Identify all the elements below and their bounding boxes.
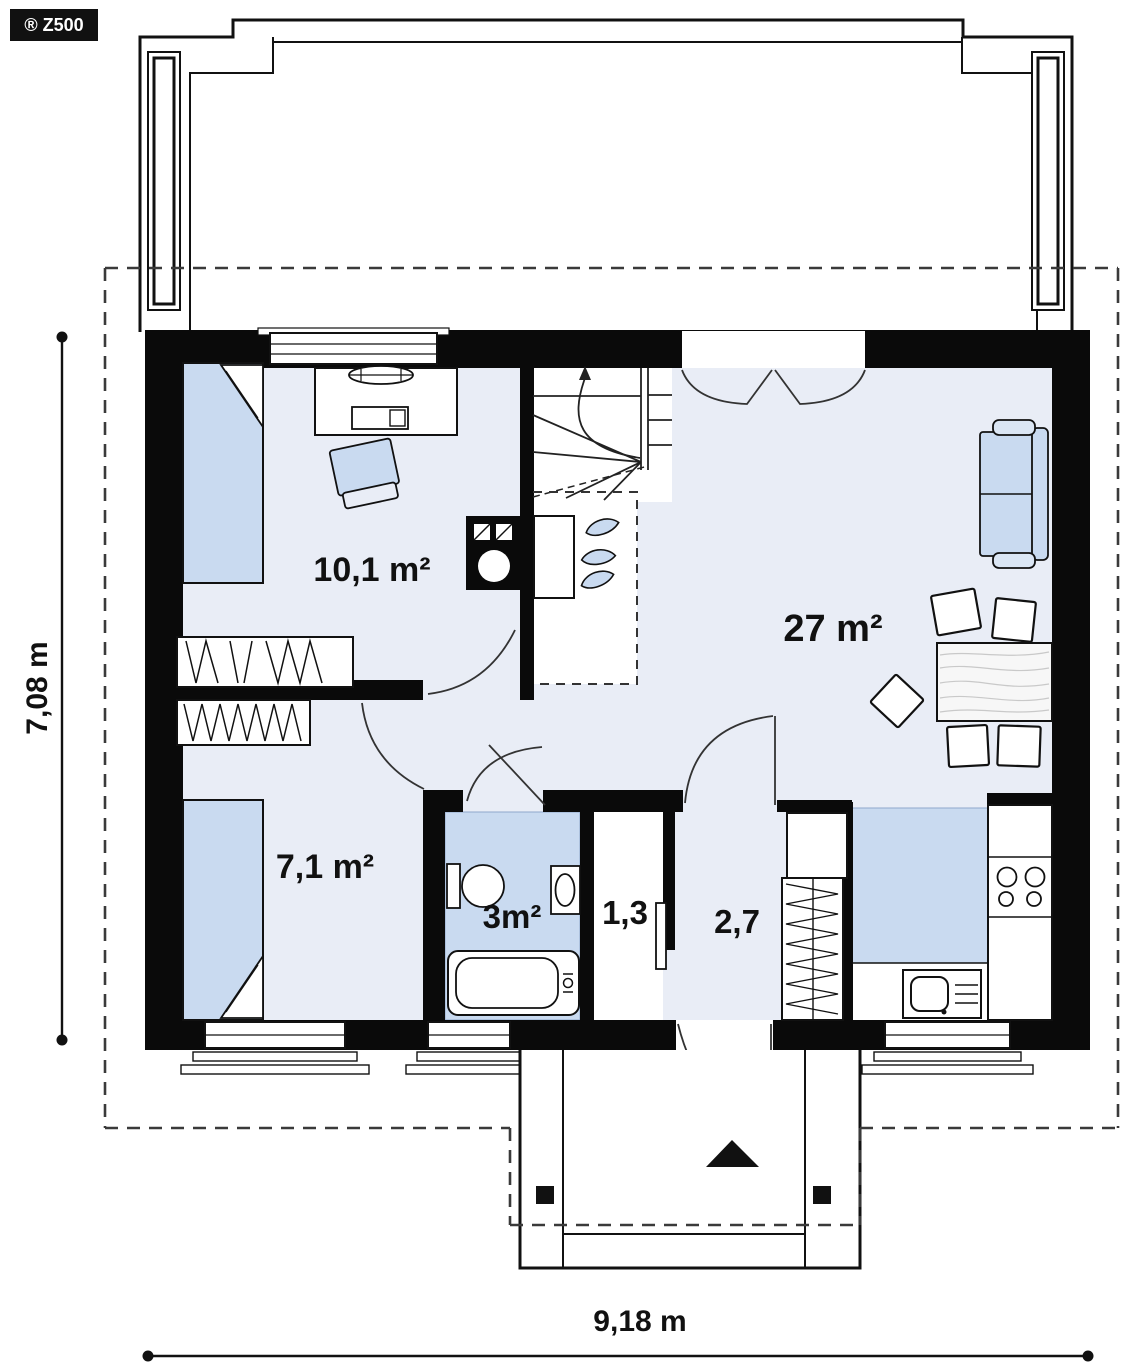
porch <box>520 1050 860 1268</box>
dimension-label-depth: 7,08 m <box>21 608 55 768</box>
desk-chair-icon <box>349 366 413 384</box>
room-label-bedroom-large: 10,1 m² <box>282 551 462 590</box>
room-label-hall: 2,7 <box>677 903 797 941</box>
terrace <box>140 20 1072 332</box>
room-label-living-room: 27 m² <box>743 608 923 651</box>
stove-fireplace-icon <box>466 516 523 590</box>
porch-post <box>536 1186 554 1204</box>
terrace-pillar-right <box>1032 52 1064 310</box>
terrace-pillar-left <box>148 52 180 310</box>
wardrobe-icon <box>177 700 310 745</box>
room-label-bedroom-small: 7,1 m² <box>235 848 415 887</box>
cabinet-icon <box>787 813 847 878</box>
porch-post <box>813 1186 831 1204</box>
dimension-line-vertical <box>57 332 68 1046</box>
entrance-door-opening <box>676 1020 773 1050</box>
bed-icon <box>183 363 263 583</box>
dimension-line-horizontal <box>143 1351 1094 1362</box>
floor-plan: ® Z500 10,1 m² 27 m² 7,1 m² 3m² 1,3 2,7 … <box>0 0 1122 1368</box>
window-bedroom-small <box>181 1022 369 1074</box>
z500-badge: ® Z500 <box>10 9 98 41</box>
kitchen-sink-icon <box>903 970 981 1018</box>
hall-wardrobe-icon <box>782 878 843 1020</box>
dimension-label-width: 9,18 m <box>540 1305 740 1339</box>
bathtub-icon <box>448 951 579 1015</box>
window-bedroom-large <box>258 328 449 364</box>
window-kitchen <box>862 1022 1033 1074</box>
dining-table-icon <box>937 643 1052 721</box>
wardrobe-icon <box>177 637 353 687</box>
french-door-opening <box>682 331 865 368</box>
floor-plan-drawing <box>0 0 1122 1368</box>
sofa-icon <box>980 420 1048 568</box>
bed-icon <box>183 800 263 1020</box>
room-label-closet: 1,3 <box>565 894 685 932</box>
